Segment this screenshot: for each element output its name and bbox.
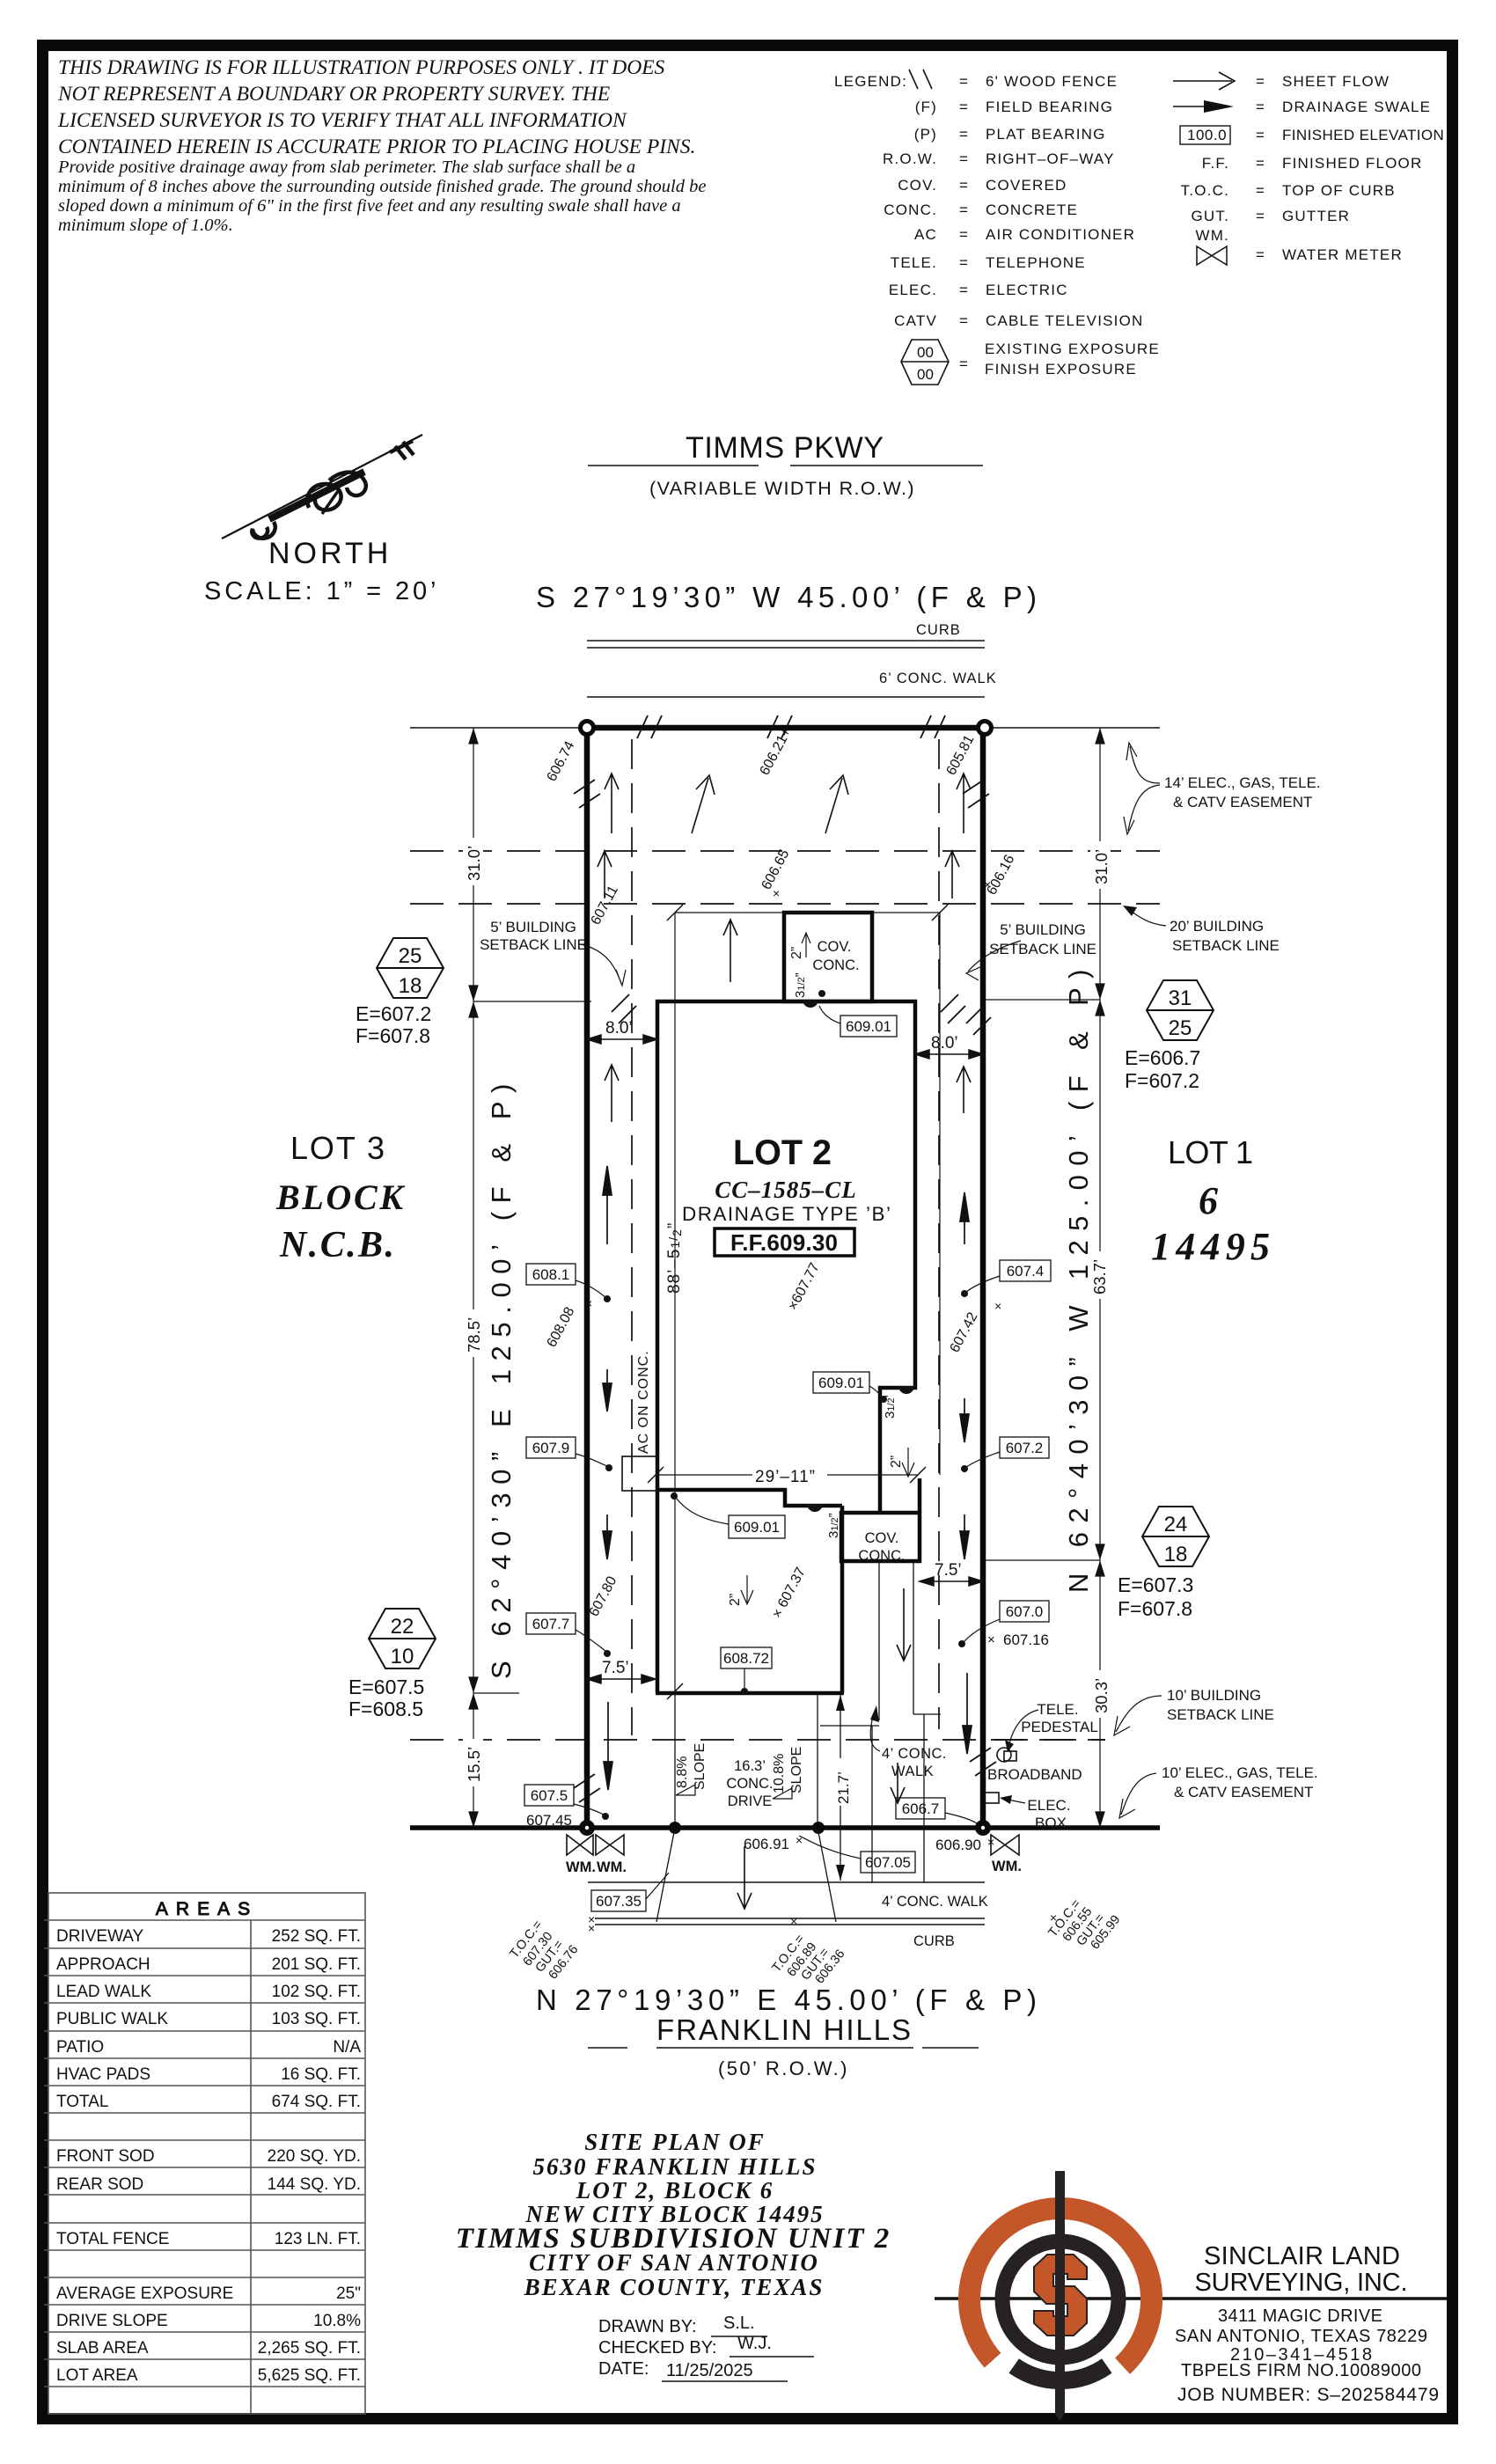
svg-text:=: = — [1256, 73, 1265, 90]
svg-text:minimum of 8 inches above the: minimum of 8 inches above the surroundin… — [58, 177, 706, 196]
svg-text:AIR CONDITIONER: AIR CONDITIONER — [986, 226, 1135, 243]
svg-text:F=608.5: F=608.5 — [348, 1698, 423, 1720]
svg-text:607.35: 607.35 — [596, 1893, 642, 1910]
svg-text:FINISH EXPOSURE: FINISH EXPOSURE — [985, 361, 1137, 378]
svg-text:×: × — [1050, 1910, 1057, 1925]
svg-text:×607.77: ×607.77 — [786, 1260, 823, 1313]
svg-text:31/2’: 31/2’ — [883, 1395, 898, 1419]
svg-text:TELEPHONE: TELEPHONE — [986, 254, 1086, 271]
svg-text:=: = — [959, 99, 969, 115]
svg-text:WATER METER: WATER METER — [1282, 246, 1403, 263]
svg-text:WALK: WALK — [891, 1764, 934, 1779]
svg-text:WM.: WM. — [566, 1859, 596, 1875]
svg-text:SINCLAIR LAND: SINCLAIR LAND — [1204, 2242, 1403, 2270]
svg-text:CONC.: CONC. — [884, 202, 937, 218]
svg-text:123 LN. FT.: 123 LN. FT. — [275, 2230, 361, 2248]
svg-text:16 SQ. FT.: 16 SQ. FT. — [281, 2065, 361, 2084]
svg-text:=: = — [1256, 155, 1265, 172]
svg-text:SLOPE: SLOPE — [693, 1743, 708, 1790]
svg-text:31/2”: 31/2” — [793, 972, 808, 998]
svg-text:14’ ELEC., GAS, TELE.: 14’ ELEC., GAS, TELE. — [1164, 774, 1321, 791]
svg-text:WM.: WM. — [1195, 227, 1229, 244]
svg-text:10’ ELEC., GAS, TELE.: 10’ ELEC., GAS, TELE. — [1162, 1764, 1318, 1781]
svg-text:BEXAR COUNTY, TEXAS: BEXAR COUNTY, TEXAS — [524, 2274, 825, 2300]
svg-text:102 SQ. FT.: 102 SQ. FT. — [272, 1983, 361, 2001]
svg-text:E=607.5: E=607.5 — [348, 1676, 424, 1698]
svg-text:606.91: 606.91 — [744, 1836, 789, 1852]
svg-text:CONC.: CONC. — [812, 957, 859, 973]
svg-text:=: = — [959, 150, 969, 167]
svg-text:N.C.B.: N.C.B. — [279, 1225, 396, 1265]
svg-text:×: × — [984, 877, 991, 891]
svg-text:COV.: COV. — [898, 177, 937, 194]
svg-text:2”: 2” — [728, 1594, 743, 1606]
svg-text:DRAINAGE TYPE ’B’: DRAINAGE TYPE ’B’ — [682, 1203, 891, 1225]
svg-text:×: × — [773, 886, 780, 900]
svg-text:4’ CONC. WALK: 4’ CONC. WALK — [882, 1894, 988, 1910]
svg-text:S 62°40’30” E 125.00’ (F & P): S 62°40’30” E 125.00’ (F & P) — [486, 1081, 517, 1679]
svg-text:24: 24 — [1164, 1513, 1188, 1536]
svg-text:CHECKED BY:: CHECKED BY: — [598, 2338, 716, 2358]
svg-text:NORTH: NORTH — [268, 537, 392, 570]
svg-text:31: 31 — [1169, 986, 1192, 1010]
svg-text:BOX: BOX — [1035, 1815, 1067, 1831]
svg-text:EXISTING EXPOSURE: EXISTING EXPOSURE — [985, 341, 1160, 357]
svg-text:ELEC.: ELEC. — [889, 282, 937, 298]
svg-text:TOP OF CURB: TOP OF CURB — [1282, 182, 1396, 199]
svg-text:20’ BUILDING: 20’ BUILDING — [1170, 918, 1264, 935]
svg-text:=: = — [959, 312, 969, 329]
svg-text:W.J.: W.J. — [737, 2334, 772, 2353]
svg-text:LOT 3: LOT 3 — [290, 1130, 389, 1166]
svg-text:DRIVEWAY: DRIVEWAY — [56, 1927, 144, 1946]
svg-text:LOT 2, BLOCK 6: LOT 2, BLOCK 6 — [576, 2177, 774, 2204]
svg-text:SETBACK LINE: SETBACK LINE — [480, 936, 587, 953]
svg-text:SLOPE: SLOPE — [789, 1747, 804, 1793]
svg-text:14495: 14495 — [1151, 1225, 1271, 1268]
svg-text:609.01: 609.01 — [846, 1018, 891, 1035]
svg-text:(P): (P) — [914, 126, 937, 143]
svg-text:607.80: 607.80 — [587, 1574, 620, 1619]
svg-text:103 SQ. FT.: 103 SQ. FT. — [272, 2010, 361, 2028]
svg-text:Provide positive drainage away: Provide positive drainage away from slab… — [57, 158, 635, 177]
svg-text:674 SQ. FT.: 674 SQ. FT. — [272, 2093, 361, 2111]
svg-text:8.0’: 8.0’ — [931, 1034, 958, 1052]
svg-text:DRAINAGE SWALE: DRAINAGE SWALE — [1282, 99, 1431, 115]
svg-text:DRIVE: DRIVE — [728, 1793, 772, 1809]
svg-text:6' WOOD FENCE: 6' WOOD FENCE — [986, 73, 1118, 90]
svg-text:N 27°19’30” E 45.00’ (F & P): N 27°19’30” E 45.00’ (F & P) — [536, 1984, 1039, 2016]
svg-text:25": 25" — [336, 2284, 361, 2303]
svg-text:6: 6 — [1199, 1179, 1218, 1222]
svg-text:×: × — [987, 1835, 994, 1849]
svg-text:COVERED: COVERED — [986, 177, 1067, 194]
svg-text:88’–51/2”: 88’–51/2” — [665, 1222, 684, 1294]
svg-text:2”: 2” — [889, 1456, 904, 1468]
svg-text:F.F.: F.F. — [1202, 155, 1229, 172]
svg-text:×: × — [987, 1632, 995, 1647]
svg-text:=: = — [959, 356, 969, 372]
svg-text:CITY OF SAN ANTONIO: CITY OF SAN ANTONIO — [529, 2249, 819, 2276]
svg-text:100.0: 100.0 — [1187, 127, 1227, 143]
svg-text:7.5’: 7.5’ — [935, 1561, 962, 1580]
svg-text:×: × — [796, 1833, 803, 1847]
svg-text:607.9: 607.9 — [532, 1440, 570, 1456]
svg-text:E=606.7: E=606.7 — [1125, 1046, 1200, 1069]
svg-text:CONC.: CONC. — [858, 1548, 905, 1564]
svg-text:22: 22 — [391, 1615, 414, 1639]
svg-text:=: = — [959, 282, 969, 298]
svg-text:8.0’: 8.0’ — [605, 1019, 633, 1038]
svg-text:AC ON CONC.: AC ON CONC. — [636, 1350, 651, 1454]
svg-text:ELEC.: ELEC. — [1027, 1797, 1070, 1814]
svg-text:608.1: 608.1 — [532, 1266, 570, 1283]
svg-text:606.74: 606.74 — [545, 739, 578, 784]
svg-text:CC–1585–CL: CC–1585–CL — [715, 1177, 857, 1203]
svg-text:SURVEYING, INC.: SURVEYING, INC. — [1195, 2269, 1411, 2297]
svg-text:COV.: COV. — [865, 1530, 899, 1546]
svg-text:607.05: 607.05 — [865, 1854, 911, 1871]
svg-text:×: × — [588, 1921, 595, 1935]
svg-text:607.7: 607.7 — [532, 1616, 570, 1632]
svg-text:F=607.8: F=607.8 — [1118, 1597, 1192, 1620]
svg-text:5’ BUILDING: 5’ BUILDING — [490, 919, 576, 935]
svg-text:DRIVE SLOPE: DRIVE SLOPE — [56, 2312, 168, 2330]
svg-text:NOT REPRESENT A BOUNDARY OR PR: NOT REPRESENT A BOUNDARY OR PROPERTY SUR… — [57, 83, 610, 106]
svg-text:TOTAL FENCE: TOTAL FENCE — [56, 2230, 169, 2248]
svg-text:& CATV EASEMENT: & CATV EASEMENT — [1173, 794, 1312, 810]
svg-text:S 27°19’30” W 45.00’ (F & P): S 27°19’30” W 45.00’ (F & P) — [536, 581, 1039, 613]
svg-text:JOB NUMBER: S–202584479: JOB NUMBER: S–202584479 — [1177, 2385, 1440, 2405]
svg-text:CATV: CATV — [894, 312, 937, 329]
svg-text:25: 25 — [399, 944, 422, 968]
svg-text:AVERAGE EXPOSURE: AVERAGE EXPOSURE — [56, 2284, 233, 2303]
svg-text:607.5: 607.5 — [531, 1787, 568, 1804]
svg-text:PLAT BEARING: PLAT BEARING — [986, 126, 1106, 143]
svg-text:T.O.C.: T.O.C. — [1181, 182, 1229, 199]
svg-text:607.4: 607.4 — [1007, 1263, 1045, 1280]
svg-text:SITE PLAN OF: SITE PLAN OF — [584, 2129, 766, 2155]
svg-text:AC: AC — [914, 226, 937, 243]
svg-text:GUT.: GUT. — [1191, 208, 1229, 224]
svg-text:LICENSED SURVEYOR IS TO VERIFY: LICENSED SURVEYOR IS TO VERIFY THAT ALL … — [57, 109, 627, 132]
svg-text:8.8%: 8.8% — [675, 1756, 690, 1788]
svg-text:=: = — [1256, 127, 1265, 143]
svg-text:LEGEND:: LEGEND: — [834, 73, 907, 90]
svg-text:16.3’: 16.3’ — [734, 1758, 766, 1774]
svg-text:SETBACK LINE: SETBACK LINE — [1167, 1706, 1274, 1723]
svg-text:=: = — [959, 73, 969, 90]
svg-text:=: = — [959, 254, 969, 271]
svg-text:607.42: 607.42 — [948, 1310, 981, 1355]
svg-text:& CATV EASEMENT: & CATV EASEMENT — [1174, 1784, 1313, 1800]
svg-text:N/A: N/A — [333, 2038, 361, 2057]
svg-text:29’–11”: 29’–11” — [755, 1468, 816, 1486]
svg-text:FRANKLIN HILLS: FRANKLIN HILLS — [656, 2013, 913, 2046]
svg-text:607.2: 607.2 — [1006, 1440, 1044, 1456]
svg-text:SCALE: 1” = 20’: SCALE: 1” = 20’ — [204, 577, 438, 605]
svg-text:CURB: CURB — [913, 1933, 955, 1949]
svg-text:DATE:: DATE: — [598, 2359, 649, 2379]
svg-text:COV.: COV. — [818, 939, 852, 955]
svg-text:10.8%: 10.8% — [313, 2312, 361, 2330]
svg-text:WM.: WM. — [992, 1859, 1022, 1874]
svg-text:ELECTRIC: ELECTRIC — [986, 282, 1068, 298]
svg-text:×: × — [994, 1299, 1001, 1313]
svg-text:SHEET FLOW: SHEET FLOW — [1282, 73, 1390, 90]
svg-text:=: = — [1256, 182, 1265, 199]
svg-text:3411 MAGIC DRIVE: 3411 MAGIC DRIVE — [1218, 2306, 1383, 2326]
svg-text:00: 00 — [917, 344, 934, 361]
svg-text:LOT 2: LOT 2 — [733, 1133, 832, 1172]
svg-text:609.01: 609.01 — [818, 1375, 864, 1391]
svg-text:GUTTER: GUTTER — [1282, 208, 1350, 224]
svg-text:PUBLIC WALK: PUBLIC WALK — [56, 2010, 168, 2028]
svg-text:F.F.609.30: F.F.609.30 — [730, 1229, 838, 1256]
svg-text:N 62°40’30” W 125.00’ (F & P): N 62°40’30” W 125.00’ (F & P) — [1063, 966, 1094, 1593]
svg-text:4’ CONC.: 4’ CONC. — [882, 1746, 947, 1762]
svg-text:5’ BUILDING: 5’ BUILDING — [1000, 921, 1086, 938]
svg-text:REAR SOD: REAR SOD — [56, 2175, 143, 2194]
svg-text:=: = — [959, 226, 969, 243]
svg-text:FIELD BEARING: FIELD BEARING — [986, 99, 1113, 115]
svg-text:=: = — [1256, 246, 1265, 263]
svg-text:31/2”: 31/2” — [826, 1513, 841, 1538]
svg-text:LOT AREA: LOT AREA — [56, 2366, 138, 2385]
svg-text:CONCRETE: CONCRETE — [986, 202, 1078, 218]
svg-text:21.7’: 21.7’ — [835, 1771, 852, 1804]
svg-text:CURB: CURB — [916, 622, 961, 638]
svg-text:SETBACK LINE: SETBACK LINE — [1172, 937, 1280, 954]
svg-text:2”: 2” — [789, 947, 804, 959]
svg-text:144 SQ. YD.: 144 SQ. YD. — [268, 2175, 361, 2194]
svg-text:25: 25 — [1169, 1016, 1192, 1040]
svg-text:609.01: 609.01 — [734, 1519, 780, 1536]
svg-text:(50’ R.O.W.): (50’ R.O.W.) — [718, 2057, 848, 2079]
svg-text:HVAC PADS: HVAC PADS — [56, 2065, 150, 2084]
svg-text:607.45: 607.45 — [526, 1812, 572, 1829]
svg-text:LEAD WALK: LEAD WALK — [56, 1983, 151, 2001]
svg-text:CABLE TELEVISION: CABLE TELEVISION — [986, 312, 1144, 329]
svg-text:AREAS: AREAS — [156, 1899, 258, 1919]
svg-text:10’ BUILDING: 10’ BUILDING — [1167, 1687, 1261, 1704]
svg-text:TELE.: TELE. — [1037, 1701, 1078, 1718]
svg-text:607.0: 607.0 — [1006, 1603, 1044, 1620]
svg-text:606.7: 606.7 — [902, 1800, 940, 1817]
svg-text:F=607.2: F=607.2 — [1125, 1069, 1199, 1092]
svg-text:220 SQ. YD.: 220 SQ. YD. — [268, 2147, 361, 2166]
svg-text:FINISHED FLOOR: FINISHED FLOOR — [1282, 155, 1422, 172]
svg-text:APPROACH: APPROACH — [56, 1955, 150, 1974]
svg-text:606.21+: 606.21+ — [758, 725, 795, 777]
svg-text:LOT 1: LOT 1 — [1168, 1134, 1258, 1170]
svg-text:PEDESTAL: PEDESTAL — [1021, 1719, 1098, 1735]
svg-text:10: 10 — [391, 1645, 414, 1668]
svg-text:TBPELS FIRM NO.10089000: TBPELS FIRM NO.10089000 — [1181, 2361, 1422, 2380]
svg-text:minimum slope of 1.0%.: minimum slope of 1.0%. — [58, 216, 233, 235]
svg-text:F=607.8: F=607.8 — [356, 1024, 430, 1047]
svg-text:THIS DRAWING IS FOR ILLUSTRATI: THIS DRAWING IS FOR ILLUSTRATION PURPOSE… — [58, 56, 665, 79]
svg-text:E=607.2: E=607.2 — [356, 1002, 431, 1025]
svg-text:2,265 SQ. FT.: 2,265 SQ. FT. — [258, 2339, 361, 2358]
svg-text:TOTAL: TOTAL — [56, 2093, 108, 2111]
svg-text:(F): (F) — [915, 99, 937, 115]
svg-text:607.16: 607.16 — [1003, 1632, 1049, 1648]
svg-text:605.81: 605.81 — [944, 733, 978, 778]
svg-text:CONC.: CONC. — [726, 1776, 773, 1792]
svg-text:78.5’: 78.5’ — [465, 1317, 483, 1353]
svg-text:606.90: 606.90 — [935, 1837, 981, 1853]
svg-text:WM.: WM. — [597, 1859, 627, 1875]
svg-text:×: × — [585, 1296, 592, 1310]
svg-text:RIGHT–OF–WAY: RIGHT–OF–WAY — [986, 150, 1115, 167]
svg-text:31.0’: 31.0’ — [1092, 849, 1111, 884]
svg-text:7.5’: 7.5’ — [602, 1659, 629, 1677]
svg-text:252 SQ. FT.: 252 SQ. FT. — [272, 1927, 361, 1946]
svg-text:30.3’: 30.3’ — [1092, 1678, 1111, 1713]
svg-text:00: 00 — [917, 366, 934, 383]
svg-text:R.O.W.: R.O.W. — [883, 150, 937, 167]
svg-text:BROADBAND: BROADBAND — [987, 1766, 1082, 1783]
svg-text:18: 18 — [399, 974, 422, 998]
svg-text:15.5’: 15.5’ — [465, 1747, 483, 1782]
svg-text:×: × — [790, 1914, 797, 1928]
svg-text:=: = — [959, 202, 969, 218]
svg-text:=: = — [1256, 208, 1265, 224]
svg-text:6’ CONC. WALK: 6’ CONC. WALK — [879, 671, 997, 686]
svg-text:608.72: 608.72 — [723, 1650, 769, 1667]
svg-text:SAN ANTONIO, TEXAS 78229: SAN ANTONIO, TEXAS 78229 — [1175, 2327, 1428, 2346]
svg-text:FRONT SOD: FRONT SOD — [56, 2147, 155, 2166]
svg-text:TELE.: TELE. — [891, 254, 937, 271]
svg-text:607.11: 607.11 — [589, 884, 621, 928]
svg-text:× 607.37: × 607.37 — [770, 1565, 810, 1620]
svg-text:CONTAINED HEREIN IS ACCURATE P: CONTAINED HEREIN IS ACCURATE PRIOR TO PL… — [58, 136, 695, 158]
svg-text:=: = — [959, 126, 969, 143]
svg-text:10.8%: 10.8% — [772, 1754, 787, 1793]
svg-text:(VARIABLE WIDTH R.O.W.): (VARIABLE WIDTH R.O.W.) — [649, 478, 915, 499]
svg-text:201 SQ. FT.: 201 SQ. FT. — [272, 1955, 361, 1974]
svg-text:5630 FRANKLIN HILLS: 5630 FRANKLIN HILLS — [532, 2153, 817, 2180]
svg-text:SETBACK LINE: SETBACK LINE — [989, 941, 1096, 957]
svg-text:SLAB AREA: SLAB AREA — [56, 2339, 149, 2358]
svg-text:S.L.: S.L. — [723, 2314, 755, 2333]
svg-text:11/25/2025: 11/25/2025 — [666, 2361, 753, 2380]
svg-text:DRAWN BY:: DRAWN BY: — [598, 2317, 697, 2336]
svg-text:=: = — [1256, 99, 1265, 115]
svg-text:E=607.3: E=607.3 — [1118, 1573, 1193, 1596]
svg-text:FINISHED ELEVATION: FINISHED ELEVATION — [1282, 127, 1444, 143]
svg-text:=: = — [959, 177, 969, 194]
svg-text:31.0’: 31.0’ — [465, 846, 483, 881]
svg-text:TIMMS PKWY: TIMMS PKWY — [686, 431, 886, 465]
svg-text:sloped down a minimum of 6" in: sloped down a minimum of 6" in the first… — [58, 196, 681, 216]
svg-text:BLOCK: BLOCK — [275, 1177, 405, 1217]
svg-text:5,625 SQ. FT.: 5,625 SQ. FT. — [258, 2366, 361, 2385]
svg-text:18: 18 — [1164, 1543, 1188, 1566]
svg-text:PATIO: PATIO — [56, 2038, 104, 2057]
svg-text:608.08: 608.08 — [545, 1305, 578, 1350]
